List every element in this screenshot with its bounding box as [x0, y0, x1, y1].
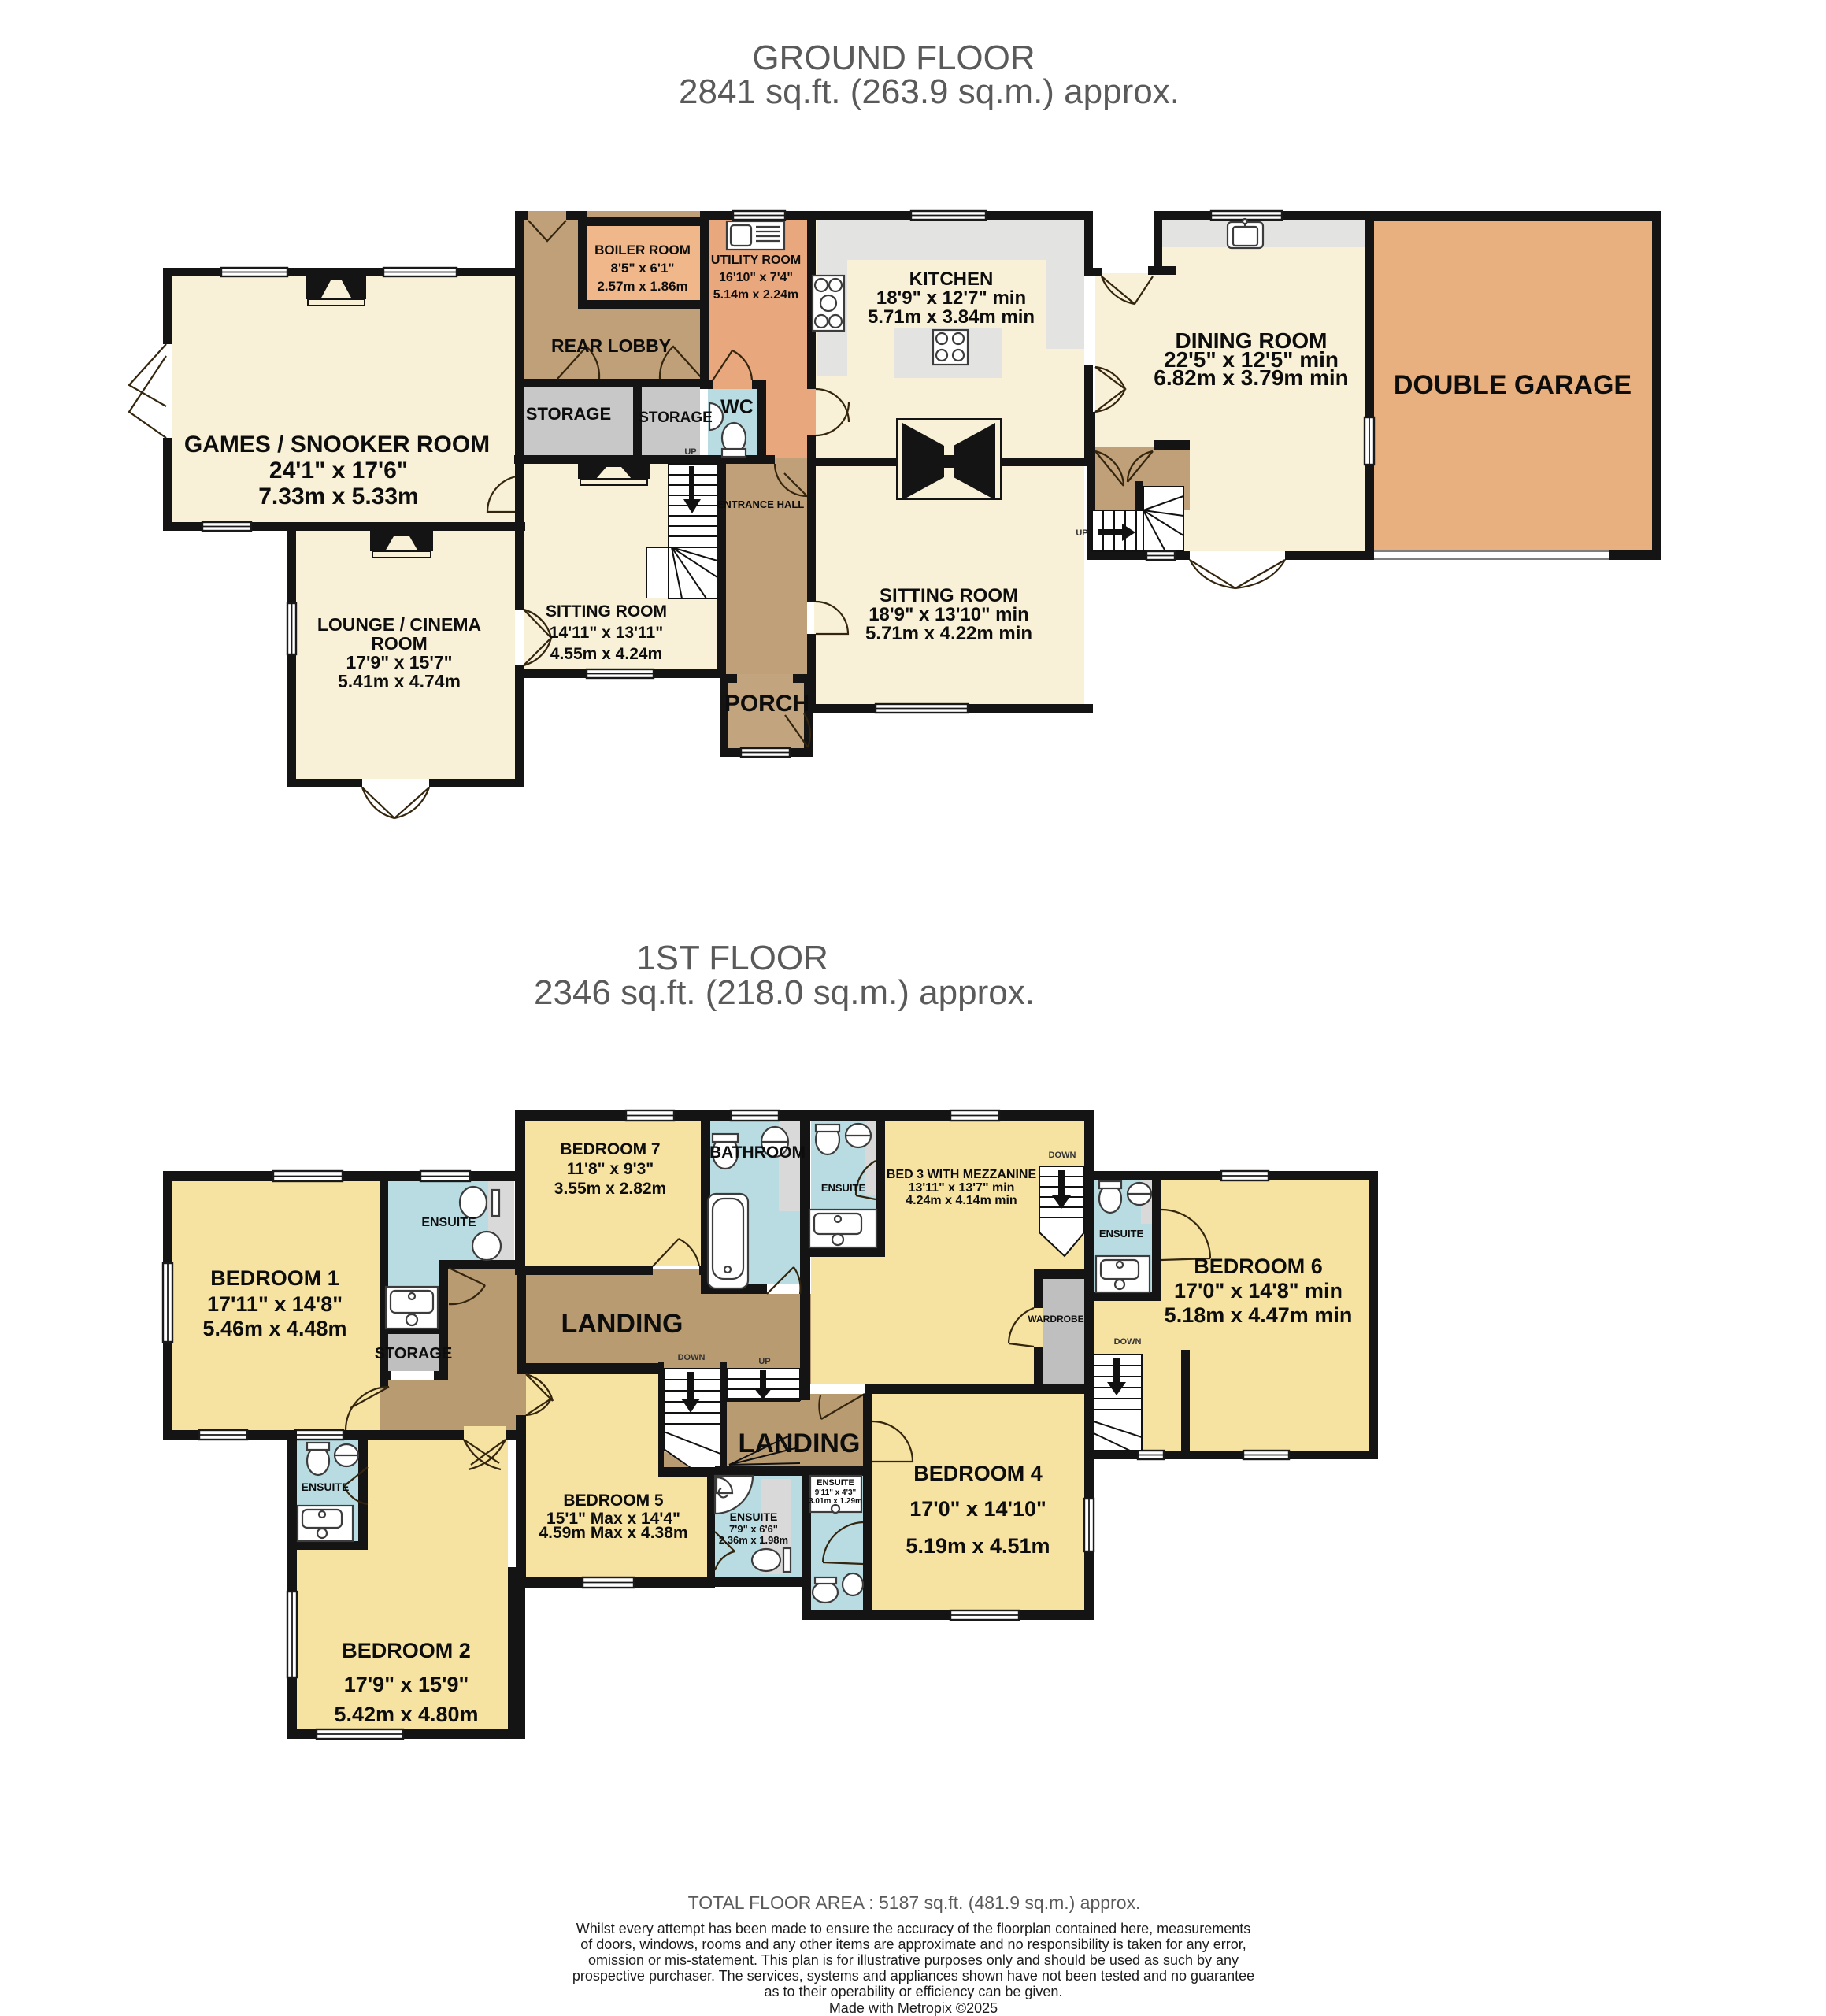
- svg-text:DOWN: DOWN: [678, 1353, 706, 1362]
- svg-text:9'11" x 4'3": 9'11" x 4'3": [815, 1488, 857, 1497]
- svg-text:PORCH: PORCH: [724, 691, 809, 717]
- svg-text:BED 3 WITH MEZZANINE: BED 3 WITH MEZZANINE: [887, 1168, 1037, 1181]
- svg-text:13'11" x 13'7" min: 13'11" x 13'7" min: [909, 1181, 1015, 1195]
- svg-text:ENSUITE: ENSUITE: [1099, 1228, 1144, 1240]
- svg-text:BOILER ROOM: BOILER ROOM: [594, 243, 691, 258]
- svg-text:WARDROBE: WARDROBE: [1028, 1314, 1083, 1325]
- svg-text:11'8" x 9'3": 11'8" x 9'3": [567, 1160, 654, 1178]
- svg-text:TOTAL FLOOR AREA : 5187 sq.ft.: TOTAL FLOOR AREA : 5187 sq.ft. (481.9 sq…: [688, 1892, 1141, 1913]
- svg-text:STORAGE: STORAGE: [375, 1345, 453, 1362]
- svg-text:5.42m x 4.80m: 5.42m x 4.80m: [334, 1703, 478, 1726]
- svg-text:17'9" x 15'9": 17'9" x 15'9": [344, 1673, 469, 1696]
- svg-text:BEDROOM 5: BEDROOM 5: [563, 1492, 664, 1510]
- svg-text:LOUNGE / CINEMA: LOUNGE / CINEMA: [317, 614, 481, 635]
- svg-text:2841 sq.ft. (263.9 sq.m.) appr: 2841 sq.ft. (263.9 sq.m.) approx.: [679, 72, 1180, 111]
- svg-text:GAMES / SNOOKER ROOM: GAMES / SNOOKER ROOM: [184, 432, 490, 458]
- svg-text:omission or mis-statement. Thi: omission or mis-statement. This plan is …: [588, 1952, 1239, 1968]
- svg-text:GROUND FLOOR: GROUND FLOOR: [752, 39, 1035, 77]
- svg-text:ROOM: ROOM: [371, 633, 428, 654]
- svg-text:prospective purchaser. The ser: prospective purchaser. The services, sys…: [572, 1968, 1254, 1984]
- svg-text:ENSUITE: ENSUITE: [421, 1216, 476, 1229]
- svg-text:STORAGE: STORAGE: [639, 409, 713, 426]
- svg-text:18'9" x 13'10" min: 18'9" x 13'10" min: [869, 604, 1029, 625]
- svg-text:5.19m x 4.51m: 5.19m x 4.51m: [906, 1534, 1050, 1558]
- svg-text:UP: UP: [684, 447, 696, 457]
- svg-text:17'11" x 14'8": 17'11" x 14'8": [207, 1292, 343, 1316]
- svg-text:REAR LOBBY: REAR LOBBY: [551, 335, 671, 356]
- svg-text:17'9" x 15'7": 17'9" x 15'7": [346, 652, 452, 673]
- svg-text:17'0" x 14'8" min: 17'0" x 14'8" min: [1174, 1279, 1343, 1303]
- svg-text:4.55m x 4.24m: 4.55m x 4.24m: [550, 645, 662, 663]
- svg-text:17'0" x 14'10": 17'0" x 14'10": [909, 1497, 1046, 1521]
- svg-text:14'11" x 13'11": 14'11" x 13'11": [550, 624, 663, 642]
- svg-text:2.36m x 1.98m: 2.36m x 1.98m: [719, 1534, 788, 1546]
- svg-text:5.18m x 4.47m min: 5.18m x 4.47m min: [1165, 1303, 1353, 1327]
- svg-text:18'9" x 12'7" min: 18'9" x 12'7" min: [876, 287, 1026, 309]
- svg-text:8'5" x 6'1": 8'5" x 6'1": [611, 261, 675, 276]
- svg-text:7'9" x 6'6": 7'9" x 6'6": [729, 1523, 778, 1535]
- svg-text:SITTING ROOM: SITTING ROOM: [880, 585, 1018, 606]
- svg-text:5.14m x 2.24m: 5.14m x 2.24m: [713, 288, 799, 302]
- svg-text:5.46m x 4.48m: 5.46m x 4.48m: [202, 1317, 346, 1340]
- svg-text:UP: UP: [1076, 528, 1087, 538]
- svg-text:KITCHEN: KITCHEN: [909, 269, 994, 290]
- svg-text:ENSUITE: ENSUITE: [302, 1480, 350, 1493]
- svg-text:BEDROOM 4: BEDROOM 4: [913, 1462, 1043, 1485]
- svg-text:LANDING: LANDING: [561, 1309, 683, 1339]
- svg-text:SITTING ROOM: SITTING ROOM: [546, 602, 667, 621]
- svg-text:ENSUITE: ENSUITE: [821, 1182, 866, 1194]
- svg-text:24'1" x 17'6": 24'1" x 17'6": [269, 458, 408, 484]
- svg-text:2346 sq.ft. (218.0 sq.m.) appr: 2346 sq.ft. (218.0 sq.m.) approx.: [534, 973, 1035, 1012]
- svg-text:1ST FLOOR: 1ST FLOOR: [636, 939, 828, 977]
- svg-text:Made with Metropix ©2025: Made with Metropix ©2025: [829, 2000, 998, 2016]
- svg-text:2.57m x 1.86m: 2.57m x 1.86m: [597, 279, 687, 294]
- svg-text:DOWN: DOWN: [1049, 1151, 1076, 1160]
- svg-text:4.59m Max x 4.38m: 4.59m Max x 4.38m: [539, 1524, 687, 1542]
- svg-text:LANDING: LANDING: [739, 1429, 861, 1458]
- svg-text:5.71m x 4.22m min: 5.71m x 4.22m min: [865, 623, 1032, 644]
- svg-text:as to their operability or eff: as to their operability or efficiency ca…: [765, 1984, 1063, 1999]
- svg-text:Whilst every attempt has been: Whilst every attempt has been made to en…: [576, 1921, 1250, 1936]
- svg-text:of doors, windows, rooms and a: of doors, windows, rooms and any other i…: [580, 1936, 1246, 1952]
- svg-text:4.24m x 4.14m min: 4.24m x 4.14m min: [906, 1194, 1017, 1207]
- svg-text:STORAGE: STORAGE: [526, 404, 611, 424]
- svg-text:DOWN: DOWN: [1114, 1337, 1142, 1347]
- svg-text:7.33m x 5.33m: 7.33m x 5.33m: [258, 484, 418, 510]
- svg-text:BEDROOM 7: BEDROOM 7: [560, 1140, 660, 1158]
- svg-text:16'10" x 7'4": 16'10" x 7'4": [719, 271, 793, 284]
- svg-text:3.55m x 2.82m: 3.55m x 2.82m: [554, 1180, 666, 1198]
- svg-text:BEDROOM 6: BEDROOM 6: [1194, 1254, 1323, 1278]
- svg-text:UTILITY ROOM: UTILITY ROOM: [711, 254, 801, 267]
- svg-text:5.71m x 3.84m min: 5.71m x 3.84m min: [868, 306, 1035, 328]
- svg-text:BATHROOM: BATHROOM: [709, 1143, 806, 1162]
- svg-text:6.82m x 3.79m min: 6.82m x 3.79m min: [1154, 365, 1348, 390]
- svg-text:ENSUITE: ENSUITE: [817, 1478, 854, 1488]
- svg-text:3.01m x 1.29m: 3.01m x 1.29m: [809, 1497, 862, 1506]
- svg-text:BEDROOM 2: BEDROOM 2: [342, 1639, 471, 1662]
- svg-text:WC: WC: [720, 396, 754, 418]
- svg-text:ENSUITE: ENSUITE: [730, 1510, 778, 1523]
- svg-text:DOUBLE GARAGE: DOUBLE GARAGE: [1394, 370, 1632, 400]
- svg-text:ENTRANCE HALL: ENTRANCE HALL: [717, 498, 805, 510]
- svg-text:UP: UP: [758, 1357, 770, 1366]
- svg-text:5.41m x 4.74m: 5.41m x 4.74m: [338, 671, 461, 691]
- svg-text:BEDROOM 1: BEDROOM 1: [210, 1266, 339, 1290]
